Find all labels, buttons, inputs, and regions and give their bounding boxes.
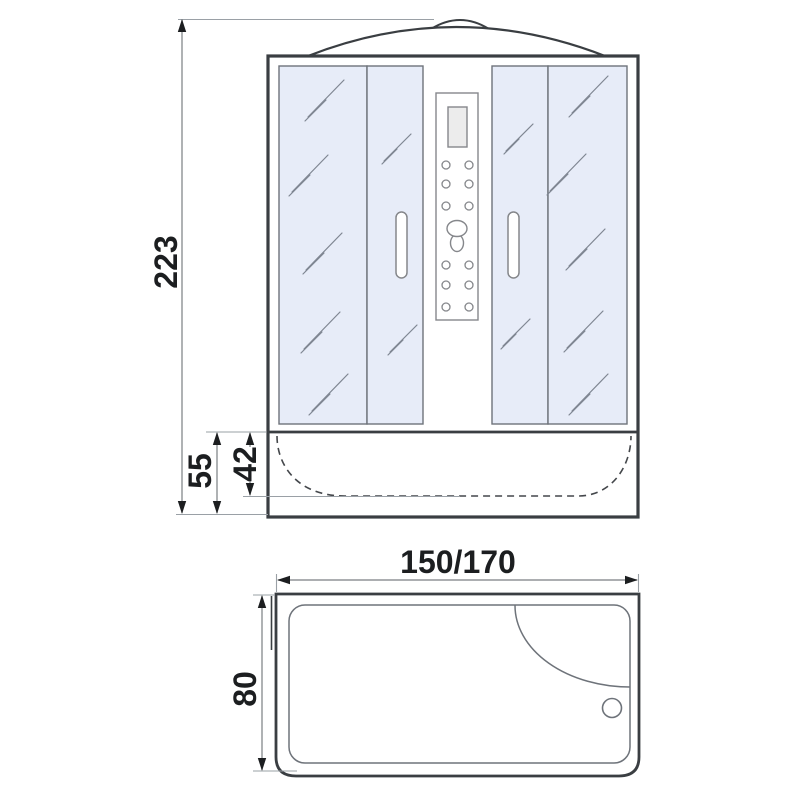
glass-door-right [492, 66, 548, 424]
dimension-basin-depth: 42 [227, 432, 263, 496]
control-button [442, 261, 450, 269]
dimension-width: 150/170 [277, 544, 639, 592]
arrow-down-icon [246, 483, 254, 496]
glass-panel-left-outer [279, 66, 367, 424]
control-button [465, 261, 473, 269]
dimension-label-width: 150/170 [400, 544, 516, 580]
control-button [442, 161, 450, 169]
tray-plan-view [272, 594, 640, 776]
arrow-right-icon [625, 576, 638, 584]
drain-circle [603, 699, 622, 718]
arrow-down-icon [178, 501, 186, 514]
control-button [442, 202, 450, 210]
dimension-label-basin-depth: 42 [227, 446, 263, 482]
control-button [442, 180, 450, 188]
dimension-total-height: 223 [148, 19, 186, 514]
dimension-label-depth: 80 [227, 671, 263, 707]
control-button [442, 303, 450, 311]
steam-knob [447, 221, 467, 237]
control-button [465, 161, 473, 169]
arrow-down-icon [213, 501, 221, 514]
arrow-down-icon [258, 758, 266, 771]
dimension-label-base-height: 55 [182, 453, 218, 489]
control-display [448, 107, 467, 147]
control-button [465, 303, 473, 311]
arrow-up-icon [213, 432, 221, 445]
arrow-up-icon [246, 432, 254, 445]
shower-cabin-technical-drawing: 223 55 42 [0, 0, 800, 800]
arrow-left-icon [277, 576, 290, 584]
dimension-label-total-height: 223 [148, 235, 184, 288]
front-elevation-view [268, 20, 638, 517]
control-button [465, 202, 473, 210]
dimension-base-height: 55 [182, 432, 221, 514]
control-button [442, 281, 450, 289]
glass-door-left [367, 66, 423, 424]
arrow-up-icon [178, 19, 186, 32]
arrow-up-icon [258, 595, 266, 608]
drawing-canvas: 223 55 42 [0, 0, 800, 800]
tray-outer-outline [276, 594, 639, 776]
door-handle-right [508, 212, 519, 278]
control-panel [436, 93, 478, 320]
door-handle-left [396, 212, 407, 278]
control-button [465, 180, 473, 188]
glass-panel-right-outer [548, 66, 627, 424]
control-button [465, 281, 473, 289]
